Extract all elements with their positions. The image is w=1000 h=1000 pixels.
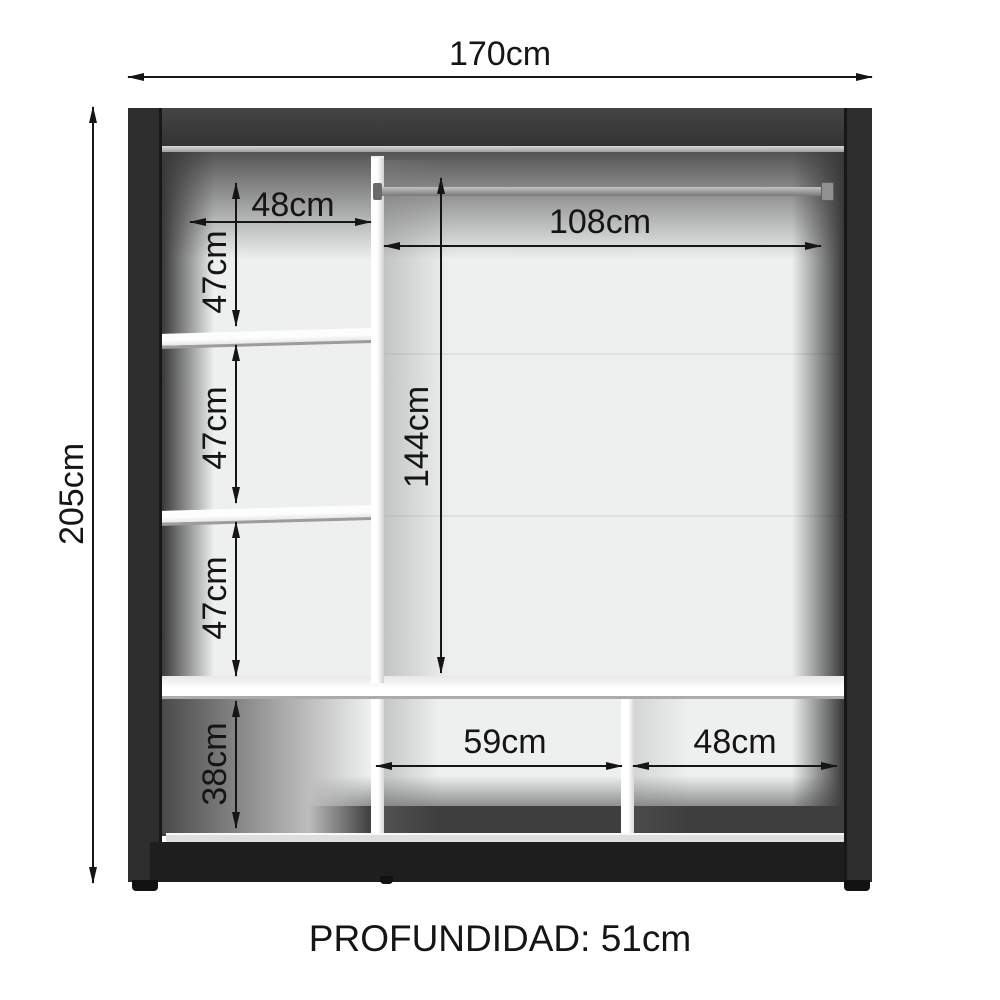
dim-arrow-bottom-right-width xyxy=(633,765,837,767)
dim-arrow-left-gap-1 xyxy=(235,183,237,326)
dim-arrow-bottom-middle-width xyxy=(376,765,622,767)
rod-bracket-left xyxy=(373,183,382,200)
dim-arrow-hanging-height xyxy=(440,178,442,673)
dim-arrow-total-height xyxy=(92,107,94,883)
dim-label-bottom-right-width: 48cm xyxy=(655,721,815,763)
dim-label-bottom-middle-width: 59cm xyxy=(425,721,585,763)
dim-label-left-bottom-height: 38cm xyxy=(194,684,236,844)
dim-label-hanging-height: 144cm xyxy=(396,357,438,517)
foot-left xyxy=(132,880,158,891)
base-plinth xyxy=(150,842,844,882)
dim-label-left-gap-3: 47cm xyxy=(194,518,236,678)
depth-note: PROFUNDIDAD: 51cm xyxy=(250,918,750,960)
dim-arrow-total-width xyxy=(128,76,872,78)
top-panel-edge xyxy=(162,146,844,152)
rod-bracket-right xyxy=(821,182,834,201)
back-panel-seam xyxy=(384,353,844,355)
dim-arrow-left-bottom-height xyxy=(235,701,237,828)
dim-label-left-gap-1: 47cm xyxy=(194,192,236,352)
wardrobe-frame-top xyxy=(128,108,872,146)
wardrobe-frame-right xyxy=(844,108,872,882)
dim-label-left-gap-2: 47cm xyxy=(194,348,236,508)
hanging-rod xyxy=(377,187,834,196)
full-width-shelf xyxy=(162,676,844,699)
foot-right xyxy=(844,880,870,891)
dim-arrow-left-gap-3 xyxy=(235,522,237,676)
dim-label-total-width: 170cm xyxy=(420,33,580,75)
foot-middle xyxy=(380,876,393,884)
base-shelf-edge xyxy=(166,833,844,842)
dim-label-rod-width: 108cm xyxy=(520,201,680,243)
back-panel-seam xyxy=(384,515,844,517)
dim-arrow-left-gap-2 xyxy=(235,345,237,503)
dim-label-total-height: 205cm xyxy=(51,414,93,574)
dim-arrow-rod-width xyxy=(384,245,821,247)
wardrobe-frame-left xyxy=(128,108,162,882)
diagram-canvas: 170cm 205cm 48cm 47cm 47cm 47cm 38cm 108… xyxy=(0,0,1000,1000)
vertical-divider-main xyxy=(371,156,384,683)
